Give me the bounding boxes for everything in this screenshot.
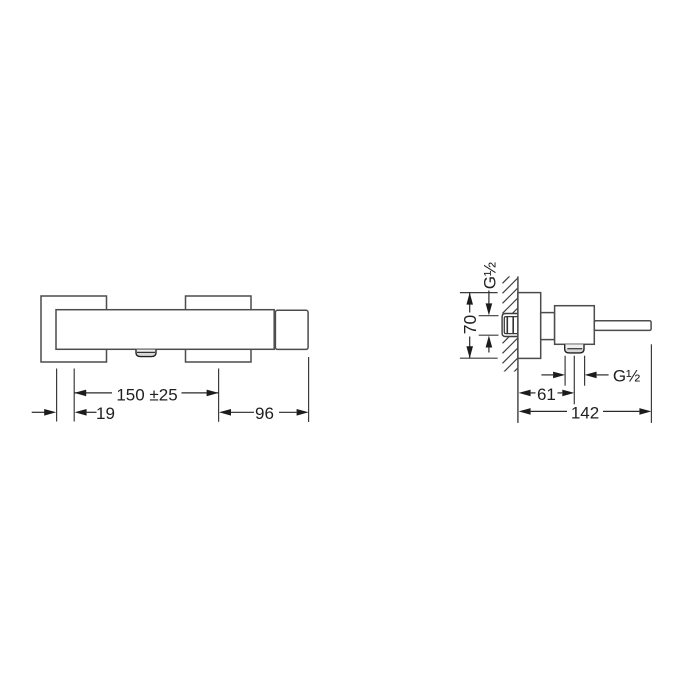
svg-text:150 ±25: 150 ±25 bbox=[116, 385, 177, 404]
svg-text:G½: G½ bbox=[481, 262, 500, 289]
svg-text:G½: G½ bbox=[613, 366, 640, 385]
svg-text:19: 19 bbox=[96, 404, 115, 423]
svg-text:61: 61 bbox=[537, 385, 556, 404]
svg-text:96: 96 bbox=[255, 404, 274, 423]
svg-text:70: 70 bbox=[460, 315, 480, 335]
svg-text:142: 142 bbox=[571, 404, 599, 423]
